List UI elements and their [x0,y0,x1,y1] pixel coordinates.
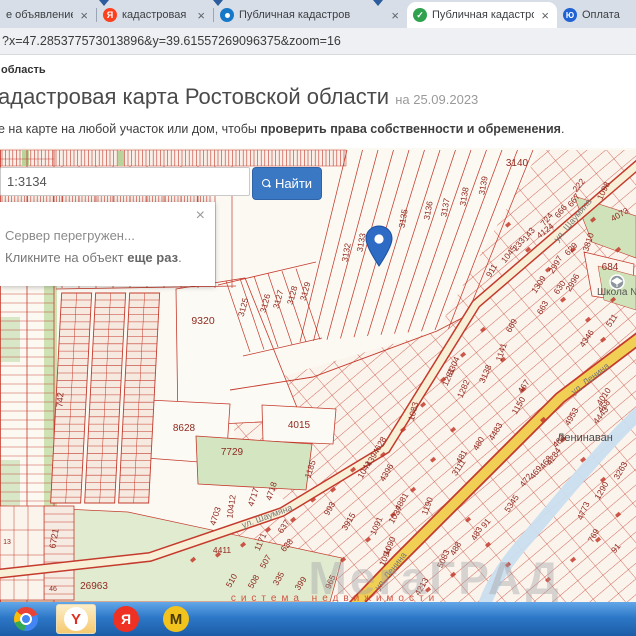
chrome-icon [14,607,38,631]
school-label: Школа № [597,287,636,298]
tab-peak-decoration [213,0,223,6]
browser-tab-bar: е объявление —×Якадастровая карта рос×Пу… [0,0,636,28]
taskbar-megagrad[interactable]: М [156,604,196,634]
tab-title: е объявление — [6,9,73,21]
tab-title: кадастровая карта рос [122,9,190,21]
parcel-number-label: 46 [49,586,57,593]
tab-title: Публичная кадастров [432,9,534,21]
breadcrumb: область [1,64,46,76]
parcel-number-label: 9320 [191,315,215,327]
parcel-number-label: 7729 [221,447,244,458]
page-title: адастровая карта Ростовской области на 2… [0,84,478,110]
check-favicon-icon: ✓ [413,8,427,22]
page-subtitle: е на карте на любой участок или дом, что… [0,122,564,136]
browser-tab-4[interactable]: ✓Публичная кадастров× [407,2,557,28]
parcel-number-label: 3140 [506,158,529,169]
windows-taskbar: Y Я М [0,602,636,636]
browser-tab-1[interactable]: е объявление —× [0,2,96,28]
taskbar-yandex-browser[interactable]: Y [56,604,96,634]
parcel-number-label: 4411 [213,545,232,555]
yoo-favicon-icon: Ю [563,8,577,22]
search-icon [262,179,271,188]
tab-title: Публичная кадастров [239,9,384,21]
watermark-tagline: система недвижимости [231,593,439,602]
cadastral-search-input[interactable] [0,167,250,196]
close-icon[interactable]: × [196,208,205,224]
tab-close-icon[interactable]: × [539,9,551,22]
find-button[interactable]: Найти [252,167,322,200]
taskbar-yandex-search[interactable]: Я [106,604,146,634]
map[interactable]: 3140313931383137313631353133313231253126… [0,148,636,602]
popup-message-line1: Сервер перегружен... [5,228,135,243]
browser-window: е объявление —×Якадастровая карта рос×Пу… [0,0,636,636]
url-bar[interactable]: ?x=47.285377573013896&y=39.6155726909637… [0,28,636,55]
browser-tab-2[interactable]: Якадастровая карта рос× [97,2,213,28]
parcel-number-label: 742 [54,392,65,408]
tab-title: Оплата [582,9,621,21]
taskbar-chrome[interactable] [6,604,46,634]
search-bar: Найти [0,167,322,200]
tab-peak-decoration [99,0,109,6]
yandex-favicon-icon: Я [103,8,117,22]
parcel-number-label: 4015 [288,420,311,431]
page-title-date: на 25.09.2023 [395,92,478,107]
yandex-search-icon: Я [113,606,139,632]
popup-message-line2: Кликните на объект еще раз. [5,250,182,265]
tab-close-icon[interactable]: × [389,9,401,22]
pkk-favicon-icon [220,8,234,22]
place-name-label: Ленинаван [557,432,613,444]
tab-close-icon[interactable]: × [78,9,90,22]
parcel-number-label: 684 [602,262,619,273]
parcel-number-label: 13 [3,539,11,546]
url-text: ?x=47.285377573013896&y=39.6155726909637… [2,34,341,48]
server-overloaded-popup: × Сервер перегружен... Кликните на объек… [0,202,215,286]
browser-tab-5[interactable]: ЮОплата [557,2,627,28]
tab-peak-decoration [373,0,383,6]
parcel-number-label: 26963 [80,581,108,592]
yandex-browser-icon: Y [64,607,88,631]
map-pin-center [374,234,383,243]
page-header: область адастровая карта Ростовской обла… [0,56,636,148]
parcel-number-label: 8628 [173,423,196,434]
tab-close-icon[interactable]: × [195,9,207,22]
megagrad-icon: М [163,606,189,632]
